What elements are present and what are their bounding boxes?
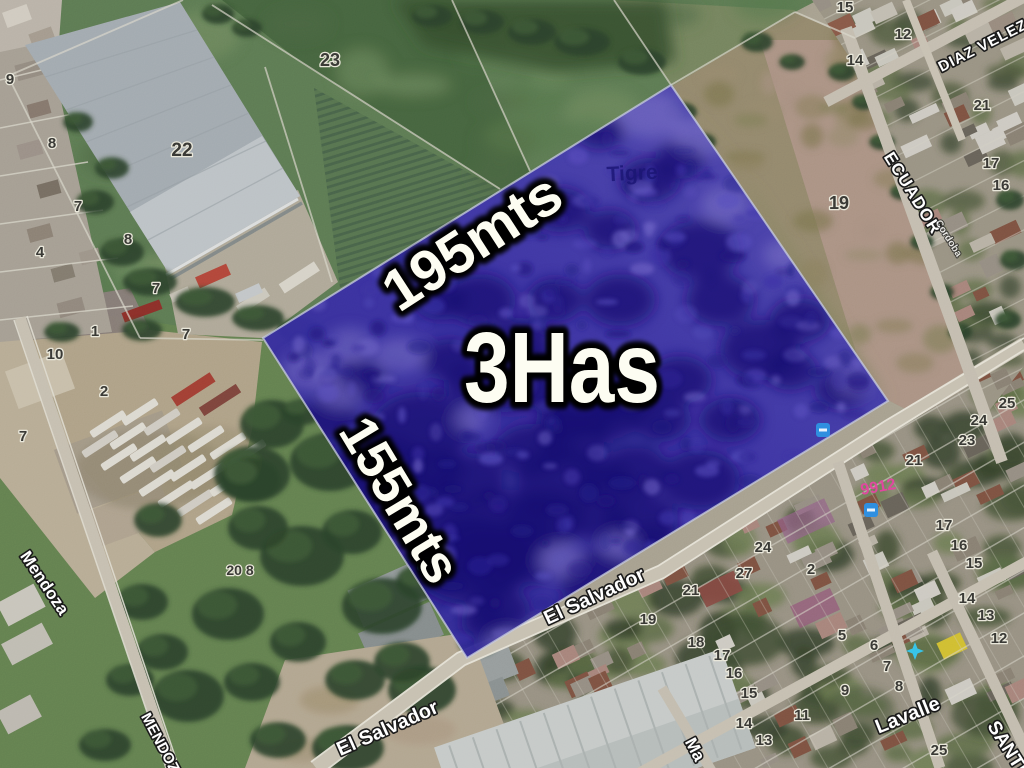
svg-text:23: 23 (959, 432, 976, 449)
svg-text:27: 27 (736, 565, 753, 582)
svg-text:3Has: 3Has (464, 312, 660, 424)
svg-text:7: 7 (19, 428, 27, 445)
svg-text:12: 12 (991, 630, 1008, 647)
svg-text:16: 16 (993, 177, 1010, 194)
svg-text:19: 19 (640, 611, 657, 628)
svg-text:12: 12 (895, 26, 912, 43)
svg-text:15: 15 (837, 0, 854, 16)
svg-text:18: 18 (688, 634, 705, 651)
svg-text:10: 10 (47, 346, 64, 363)
svg-text:23: 23 (320, 50, 340, 70)
svg-text:15: 15 (966, 555, 983, 572)
svg-text:6: 6 (870, 637, 878, 654)
svg-text:21: 21 (683, 582, 700, 599)
svg-text:15: 15 (741, 685, 758, 702)
svg-text:2: 2 (100, 383, 108, 400)
svg-text:14: 14 (959, 590, 976, 607)
svg-text:25: 25 (999, 395, 1016, 412)
svg-text:21: 21 (974, 97, 991, 114)
svg-text:4: 4 (36, 244, 45, 261)
svg-text:14: 14 (736, 715, 753, 732)
svg-text:5: 5 (838, 627, 846, 644)
svg-text:13: 13 (978, 607, 995, 624)
svg-text:25: 25 (931, 742, 948, 759)
svg-text:9: 9 (6, 71, 14, 88)
svg-text:16: 16 (726, 665, 743, 682)
svg-text:13: 13 (756, 732, 773, 749)
svg-text:1: 1 (91, 323, 99, 340)
svg-text:7: 7 (182, 326, 190, 343)
svg-text:21: 21 (906, 452, 923, 469)
svg-text:19: 19 (829, 193, 849, 213)
svg-text:8: 8 (895, 678, 903, 695)
svg-text:7: 7 (883, 658, 891, 675)
svg-text:20 8: 20 8 (226, 562, 253, 578)
svg-text:7: 7 (74, 198, 82, 215)
svg-text:22: 22 (171, 140, 192, 161)
svg-text:8: 8 (48, 135, 56, 152)
svg-text:16: 16 (951, 537, 968, 554)
svg-text:24: 24 (755, 539, 772, 556)
svg-text:14: 14 (847, 52, 864, 69)
svg-text:8: 8 (124, 231, 132, 248)
svg-text:17: 17 (936, 517, 953, 534)
svg-text:17: 17 (714, 647, 731, 664)
svg-text:24: 24 (971, 412, 988, 429)
svg-text:11: 11 (794, 707, 810, 724)
svg-text:9: 9 (841, 682, 849, 699)
svg-text:17: 17 (983, 155, 1000, 172)
svg-text:2: 2 (807, 561, 815, 578)
svg-text:7: 7 (152, 280, 160, 297)
